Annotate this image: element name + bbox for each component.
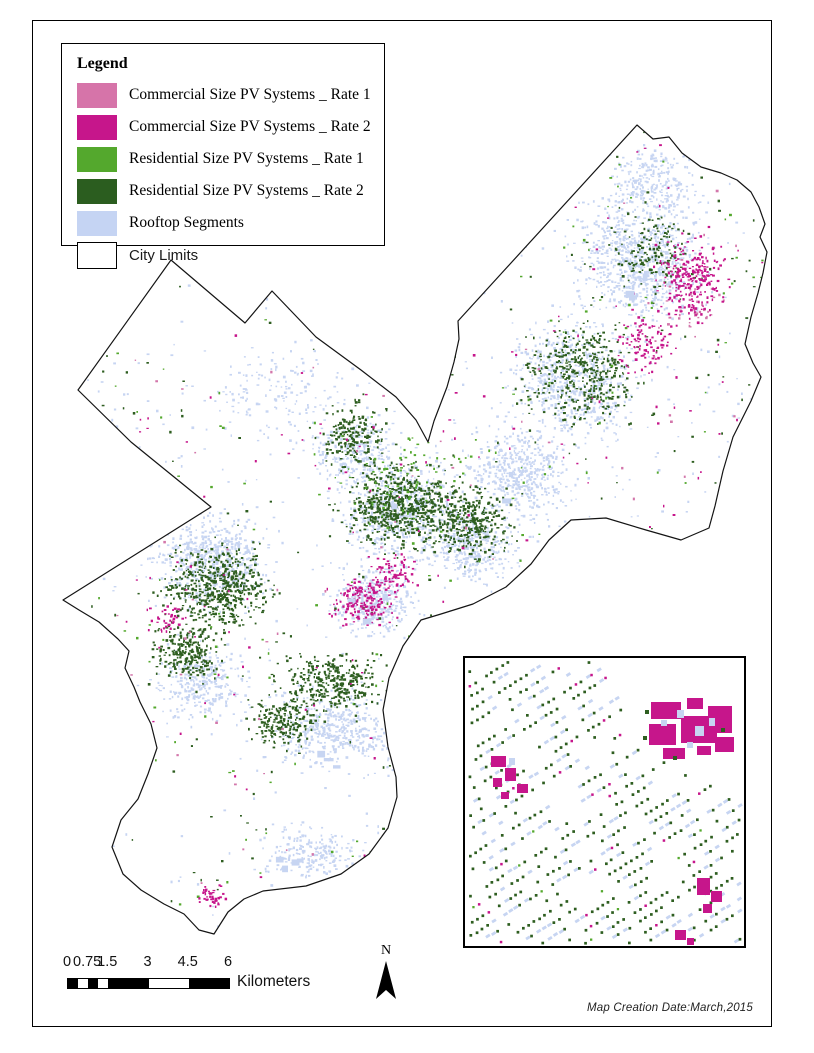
legend-item-label: Commercial Size PV Systems _ Rate 1 [129, 86, 371, 104]
scale-unit-label: Kilometers [237, 973, 310, 991]
legend-item: City Limits [77, 242, 384, 268]
legend-swatch [77, 211, 117, 236]
scale-bar-segment [78, 979, 88, 988]
scale-tick-label: 0 [63, 954, 71, 970]
legend-item-label: Commercial Size PV Systems _ Rate 2 [129, 118, 371, 136]
inset-map-canvas [465, 658, 744, 946]
scale-tick-label: 3 [143, 954, 151, 970]
legend-swatch [77, 242, 117, 269]
legend-item-label: Residential Size PV Systems _ Rate 2 [129, 182, 364, 200]
scale-bar-segment [149, 979, 189, 988]
north-arrow: N [371, 943, 401, 1000]
legend-swatch [77, 147, 117, 172]
north-arrow-label: N [371, 943, 401, 959]
scale-tick-label: 1.5 [97, 954, 117, 970]
scale-bar: 00.751.534.56 Kilometers [67, 954, 387, 1000]
legend-swatch [77, 179, 117, 204]
inset-map [463, 656, 746, 948]
legend-swatch [77, 115, 117, 140]
scale-bar-segment [108, 979, 148, 988]
legend-item: Commercial Size PV Systems _ Rate 1 [77, 82, 384, 108]
legend-item: Rooftop Segments [77, 210, 384, 236]
legend-item-label: Rooftop Segments [129, 214, 244, 232]
scale-bar-segment [98, 979, 108, 988]
legend-item-label: City Limits [129, 247, 198, 264]
legend-title: Legend [77, 55, 384, 73]
legend-item-label: Residential Size PV Systems _ Rate 1 [129, 150, 364, 168]
scale-bar-labels: 00.751.534.56 [67, 954, 267, 972]
legend-swatch [77, 83, 117, 108]
legend-box: Legend Commercial Size PV Systems _ Rate… [61, 43, 385, 246]
scale-bar-segment [88, 979, 98, 988]
legend-items: Commercial Size PV Systems _ Rate 1Comme… [77, 82, 384, 268]
scale-bar-segment [189, 979, 229, 988]
legend-item: Residential Size PV Systems _ Rate 1 [77, 146, 384, 172]
map-frame: Legend Commercial Size PV Systems _ Rate… [32, 20, 772, 1027]
legend-item: Residential Size PV Systems _ Rate 2 [77, 178, 384, 204]
scale-bar-segment [68, 979, 78, 988]
north-arrow-icon [374, 960, 398, 1000]
scale-tick-label: 4.5 [178, 954, 198, 970]
scale-bar-blocks [67, 978, 230, 989]
legend-item: Commercial Size PV Systems _ Rate 2 [77, 114, 384, 140]
map-date-note: Map Creation Date:March,2015 [587, 1002, 753, 1014]
map-page: Legend Commercial Size PV Systems _ Rate… [0, 0, 814, 1053]
scale-tick-label: 6 [224, 954, 232, 970]
